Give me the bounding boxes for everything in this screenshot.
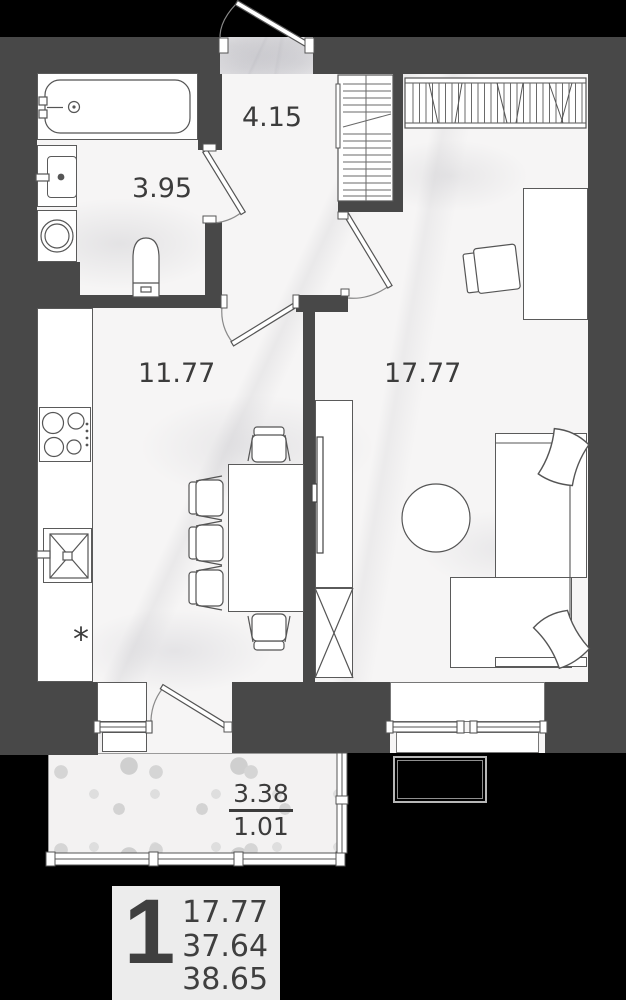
- bathroom-area-label: 3.95: [130, 173, 194, 204]
- balcony-area-counted: 1.01: [222, 813, 300, 841]
- rooms-count: 1: [124, 890, 172, 975]
- plan-symbols-layer: [0, 0, 626, 1000]
- dining-chairs-left: [189, 476, 223, 610]
- dining-chair-top: [248, 427, 290, 462]
- apartment-summary: 1 17.77 37.64 38.65: [112, 886, 280, 1000]
- pillow-top-icon: [536, 426, 591, 489]
- desk-chair-icon: [462, 244, 520, 295]
- balcony-door: [151, 685, 230, 731]
- balcony-area-total: 3.38: [222, 780, 300, 808]
- cooktop-icon: [43, 413, 89, 457]
- kitchen-door: [222, 302, 299, 346]
- living-room-area-label: 17.77: [384, 358, 456, 389]
- kitchen-sink-icon: [37, 534, 88, 578]
- bathtub-icon: [39, 80, 190, 133]
- round-table-icon: [402, 484, 470, 552]
- wardrobe-hangers-icon: [405, 78, 586, 128]
- toilet-icon: [133, 238, 159, 297]
- areas-column: 17.77 37.64 38.65: [182, 896, 268, 997]
- washing-machine-icon: [41, 220, 73, 252]
- living-window-icon: [386, 721, 547, 733]
- balcony-area-label: 3.38 1.01: [222, 780, 300, 840]
- kitchen-area-label: 11.77: [138, 358, 210, 389]
- built-in-closet-icon: [336, 75, 393, 201]
- total-area-value: 38.65: [182, 963, 268, 997]
- dining-chair-bottom: [248, 614, 290, 650]
- bathroom-door: [203, 150, 245, 223]
- living-room-door: [344, 213, 392, 299]
- balcony-unit-window-icon: [94, 721, 152, 733]
- fridge-marker: *: [66, 620, 96, 658]
- floor-plan: 4.15 3.95 11.77 17.77 * 3.38 1.01 1 17.7…: [0, 0, 626, 1000]
- pillow-bottom-icon: [532, 606, 591, 670]
- hallway-area-label: 4.15: [240, 102, 304, 133]
- wardrobe-x-icon: [315, 588, 353, 678]
- washbasin-icon: [36, 174, 64, 181]
- living-area-value: 17.77: [182, 896, 268, 930]
- area-without-balcony-value: 37.64: [182, 930, 268, 964]
- entrance-door: [220, 1, 314, 51]
- tv-icon: [312, 437, 323, 553]
- balcony-glazing-icon: [46, 753, 348, 866]
